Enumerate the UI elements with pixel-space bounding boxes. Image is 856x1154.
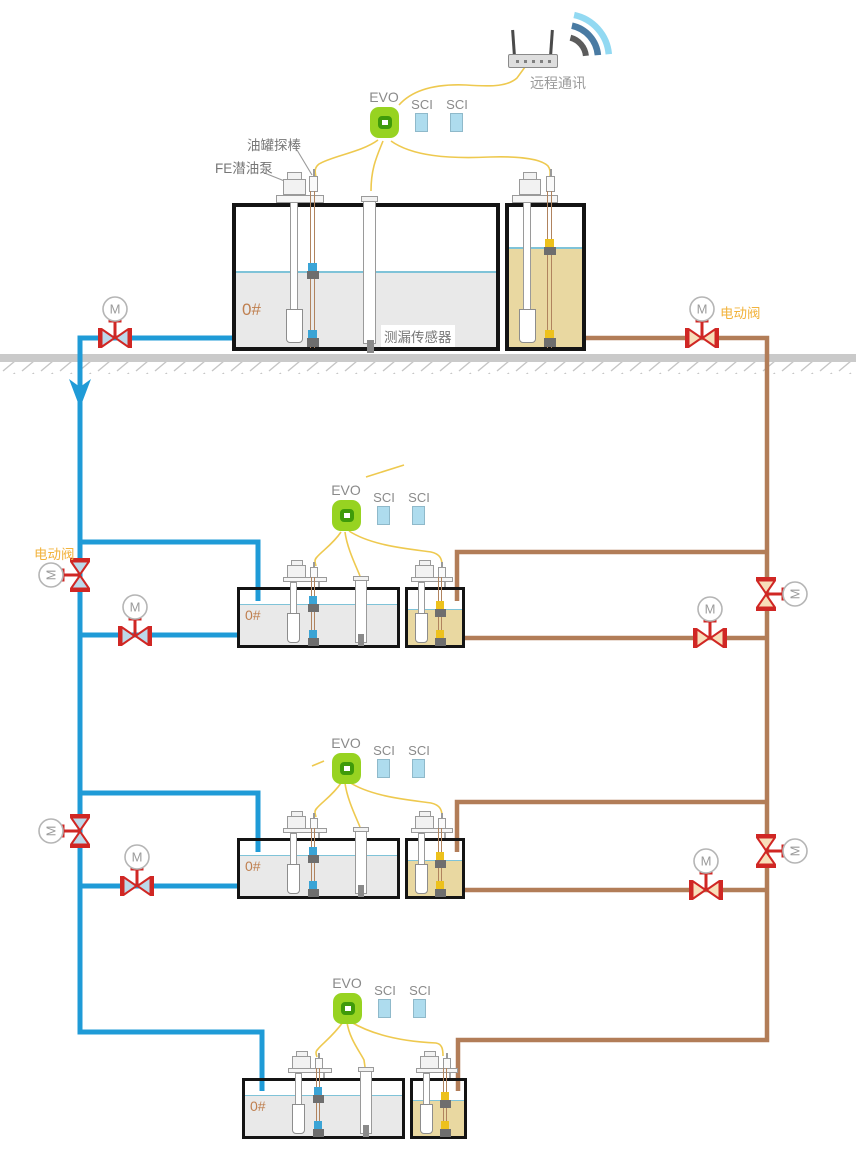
probe-fitting xyxy=(309,176,318,192)
sci-module xyxy=(450,113,463,132)
leak-sensor-cap xyxy=(353,576,369,581)
leak-sensor-tip xyxy=(358,634,364,646)
probe-float xyxy=(309,881,317,889)
probe-fitting-stem xyxy=(318,1053,320,1058)
probe-float-weight xyxy=(307,271,319,279)
probe-float-weight xyxy=(544,247,556,255)
sci-label: SCI xyxy=(427,97,487,112)
probe-fitting-stem xyxy=(441,813,443,818)
pump-tube xyxy=(290,582,297,614)
probe-float xyxy=(309,847,317,855)
probe-float xyxy=(441,1121,449,1129)
pump-motor xyxy=(519,179,541,195)
diagram-canvas: MMMMMMMMMM 远程通讯EVOSCISCIEVOSCISCIEVOSCIS… xyxy=(0,0,856,1154)
leak-sensor-cap xyxy=(361,196,378,202)
probe-fitting-stem xyxy=(313,562,315,567)
pump-tube xyxy=(523,202,531,312)
probe-float-weight xyxy=(308,889,319,897)
probe-fitting-stem xyxy=(441,562,443,567)
probe-float xyxy=(436,852,444,860)
probe-float-weight xyxy=(435,609,446,617)
tank-probe-label: 油罐探棒 xyxy=(247,134,301,154)
evo-console-ring xyxy=(340,762,354,775)
flange-leg xyxy=(318,833,320,838)
pump-motor xyxy=(287,816,306,829)
electric-valve-label: 电动阀 xyxy=(34,543,75,563)
pump-motor xyxy=(420,1056,439,1069)
pump-body xyxy=(292,1104,305,1134)
sci-module xyxy=(413,999,426,1018)
flange-leg xyxy=(444,582,446,587)
probe-float-weight xyxy=(308,855,319,863)
leak-sensor-tube xyxy=(363,197,376,344)
sci-label: SCI xyxy=(390,983,450,998)
probe-fitting-stem xyxy=(313,813,315,818)
leak-sensor-label: 测漏传感器 xyxy=(381,325,455,347)
flange-leg xyxy=(323,1073,325,1078)
pump-body xyxy=(287,613,300,643)
router-led xyxy=(524,60,527,63)
router-antenna xyxy=(511,30,516,55)
probe-float-weight xyxy=(435,638,446,646)
manhole-flange xyxy=(276,195,324,203)
fuel-fill xyxy=(240,856,397,896)
router-antenna xyxy=(549,30,554,55)
tank-number-label: 0# xyxy=(245,607,261,623)
fuel-level-line xyxy=(240,604,397,606)
pump-tube xyxy=(290,202,298,312)
pump-motor xyxy=(292,1056,311,1069)
probe-float-weight xyxy=(440,1100,451,1108)
probe-float xyxy=(309,596,317,604)
fuel-level-line xyxy=(245,1095,402,1097)
probe-fitting xyxy=(546,176,555,192)
flange-leg xyxy=(444,833,446,838)
probe-float-weight xyxy=(435,889,446,897)
pump-body xyxy=(420,1104,433,1134)
probe-float xyxy=(436,601,444,609)
pump-tube xyxy=(290,833,297,865)
fuel-level-line xyxy=(240,855,397,857)
pump-motor xyxy=(287,565,306,578)
pump-body xyxy=(519,309,536,343)
tank-probe-rod xyxy=(547,191,552,348)
leak-sensor-tip xyxy=(358,885,364,897)
probe-fitting-stem xyxy=(313,169,315,176)
probe-float-weight xyxy=(313,1129,324,1137)
pump-tube xyxy=(423,1073,430,1105)
pump-body xyxy=(286,309,303,343)
evo-console-ring xyxy=(341,1002,355,1015)
probe-float-weight xyxy=(307,338,319,347)
pump-label: FE潜油泵 xyxy=(215,157,273,177)
sci-module xyxy=(412,759,425,778)
probe-fitting-stem xyxy=(446,1053,448,1058)
flange-leg xyxy=(318,582,320,587)
fuel-level-line xyxy=(413,1100,464,1102)
leak-sensor-tip xyxy=(363,1125,369,1137)
pump-motor xyxy=(283,179,306,195)
probe-float-weight xyxy=(435,860,446,868)
router-led xyxy=(548,60,551,63)
probe-float xyxy=(314,1121,322,1129)
sci-module xyxy=(412,506,425,525)
probe-float xyxy=(309,630,317,638)
evo-console-ring xyxy=(340,509,354,522)
probe-float-weight xyxy=(308,638,319,646)
sci-module xyxy=(415,113,428,132)
router-led xyxy=(540,60,543,63)
pump-motor xyxy=(415,565,434,578)
node-layer: 远程通讯EVOSCISCIEVOSCISCIEVOSCISCIEVOSCISCI… xyxy=(0,0,856,1154)
pump-body xyxy=(415,613,428,643)
tank-number-label: 0# xyxy=(250,1098,266,1114)
pump-motor xyxy=(415,816,434,829)
tank-number-label: 0# xyxy=(245,858,261,874)
sci-label: SCI xyxy=(389,743,449,758)
probe-fitting-stem xyxy=(550,169,552,176)
probe-float-weight xyxy=(544,338,556,347)
probe-float-weight xyxy=(313,1095,324,1103)
sci-module xyxy=(377,759,390,778)
router-led xyxy=(532,60,535,63)
fuel-fill xyxy=(240,605,397,645)
sci-module xyxy=(378,999,391,1018)
probe-float xyxy=(314,1087,322,1095)
router-led xyxy=(516,60,519,63)
fuel-fill xyxy=(245,1096,402,1136)
pump-body xyxy=(415,864,428,894)
probe-float xyxy=(441,1092,449,1100)
pump-body xyxy=(287,864,300,894)
tank-number-label: 0# xyxy=(242,300,261,320)
pump-tube xyxy=(295,1073,302,1105)
probe-float xyxy=(436,630,444,638)
electric-valve-label: 电动阀 xyxy=(720,302,761,322)
evo-console-ring xyxy=(378,116,392,129)
probe-float xyxy=(436,881,444,889)
leak-sensor-cap xyxy=(358,1067,374,1072)
sci-module xyxy=(377,506,390,525)
pump-tube xyxy=(418,833,425,865)
flange-leg xyxy=(449,1073,451,1078)
probe-float-weight xyxy=(440,1129,451,1137)
leak-sensor-tip xyxy=(367,340,374,353)
probe-float-weight xyxy=(308,604,319,612)
pump-tube xyxy=(418,582,425,614)
remote-comm-label: 远程通讯 xyxy=(530,73,586,93)
sci-label: SCI xyxy=(389,490,449,505)
leak-sensor-cap xyxy=(353,827,369,832)
